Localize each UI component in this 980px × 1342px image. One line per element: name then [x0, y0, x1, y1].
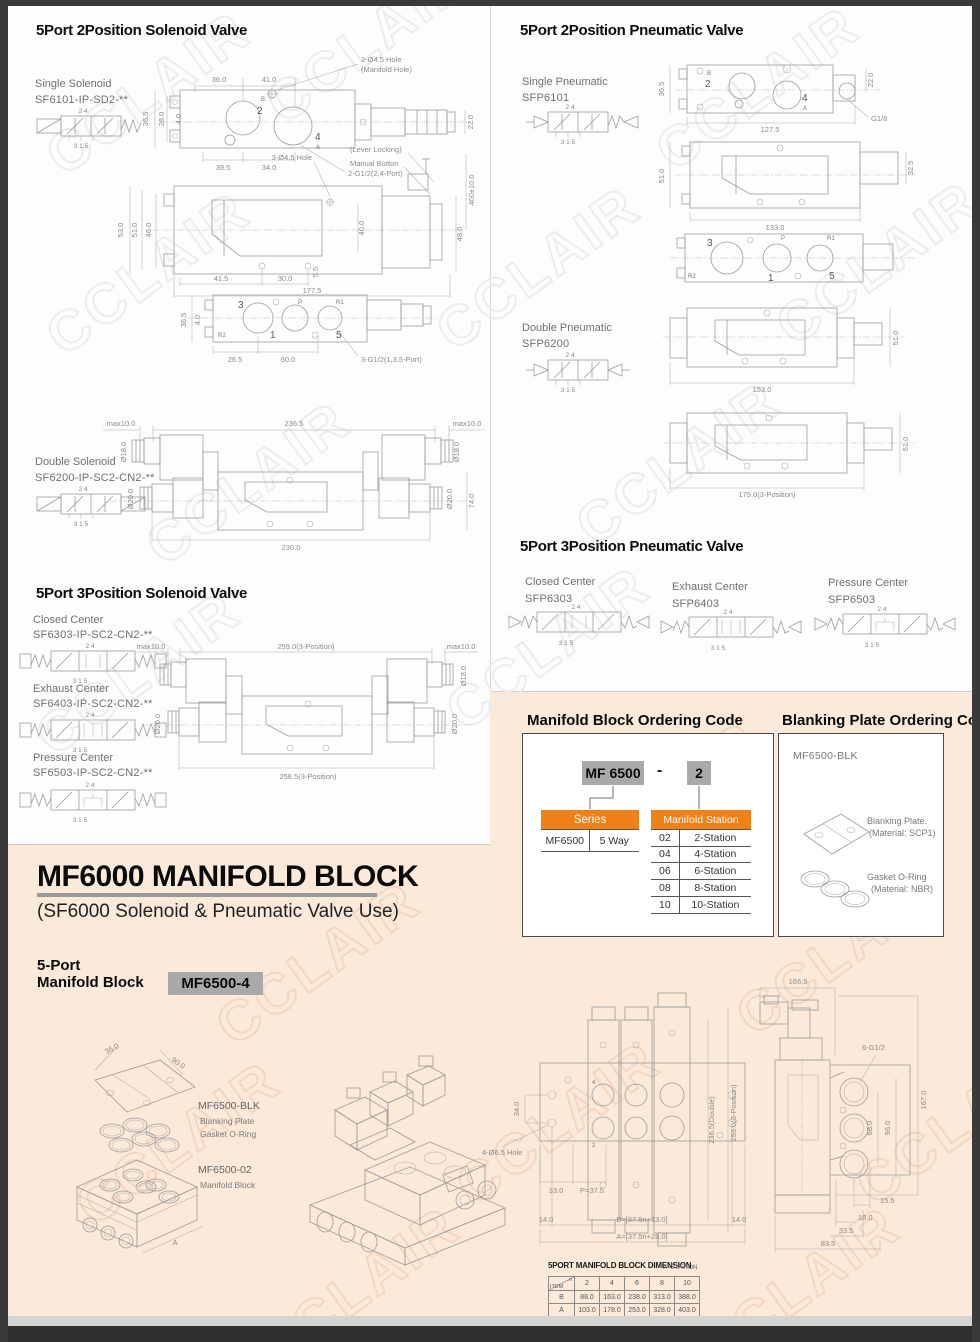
drawing-sfp6101-side-view: 51.0 32.5 133.0 — [650, 130, 930, 235]
page-right-edge — [972, 0, 980, 1342]
port-label: R1 — [827, 236, 835, 242]
dim: max10.0 — [137, 642, 166, 651]
dim: 74.0 — [467, 494, 476, 509]
svg-text:3 1 5: 3 1 5 — [559, 640, 574, 647]
exploded-mb-label: Manifold Block — [200, 1180, 255, 1190]
dim: 3-Ø4.5 Hole — [272, 153, 312, 162]
svg-text:2 4: 2 4 — [78, 486, 87, 493]
svg-text:3 1 5: 3 1 5 — [711, 645, 726, 652]
cell: 388.0 — [675, 1291, 700, 1304]
page-bottom-edge — [0, 1326, 980, 1342]
dim: 167.0 — [919, 1091, 928, 1110]
station-row: 06 6-Station — [651, 863, 751, 880]
port-label: A — [803, 106, 807, 112]
five-port-label-line1: 5-Port — [37, 957, 80, 974]
station-code: 02 — [651, 830, 680, 846]
dim: 36.0 — [212, 75, 227, 84]
dim: 33.0 — [549, 1186, 564, 1195]
dim: 41.5 — [214, 274, 229, 283]
dim: 258.5(3-Position) — [279, 772, 337, 781]
dim: 15.5 — [880, 1196, 895, 1205]
dim: 51.0 — [901, 437, 910, 452]
valve-symbol-sfp6503: 2 4 3 1 5 — [806, 604, 964, 648]
col-header: 6 — [625, 1277, 650, 1291]
col-header: 8 — [650, 1277, 675, 1291]
page-top-edge — [0, 0, 980, 6]
valve-symbol-sfp6303: 2 4 3 1 5 — [500, 602, 658, 646]
svg-text:2 4: 2 4 — [85, 712, 94, 719]
cell: 238.0 — [625, 1291, 650, 1304]
dim: 166.5 — [789, 977, 808, 986]
symbol-ports-top: 2 4 — [78, 108, 87, 115]
exploded-blk-model: MF6500-BLK — [198, 1100, 260, 1112]
dim: 6-G1/2 — [862, 1043, 885, 1052]
panel-edge — [491, 691, 972, 692]
dim: 96.0 — [883, 1121, 892, 1136]
svg-text:3 1 5: 3 1 5 — [73, 678, 88, 685]
catalog-page: CCLAIR CCLAIR CCLAIR CCLAIR CCLAIR CCLAI… — [0, 0, 980, 1342]
station-desc: 10-Station — [680, 897, 751, 913]
section-title-5p3p-pneumatic: 5Port 3Position Pneumatic Valve — [520, 538, 743, 555]
svg-text:2 4: 2 4 — [723, 609, 732, 616]
single-pneumatic-label: Single Pneumatic — [522, 76, 608, 88]
port-label: R2 — [688, 274, 696, 280]
drawing-sf6303: max10.0 259.0(3-Position) max10.0 Ø18.0 … — [130, 638, 482, 788]
blanking-plate-box: MF6500-BLK Blanking Plate. (Material: SC… — [778, 733, 944, 937]
port-label: R1 — [336, 300, 344, 306]
page-bottom-shadow — [8, 1316, 972, 1326]
col-header: 2 — [575, 1277, 600, 1291]
drawing-sfp6200-3pos: 51.0 179.0(3-Position) — [655, 398, 945, 503]
mf6000-title: MF6000 MANIFOLD BLOCK — [37, 860, 418, 894]
single-solenoid-model: SF6101-IP-SD2-** — [35, 94, 128, 106]
dim: max10.0 — [447, 642, 476, 651]
corner-n: n — [569, 1277, 572, 1283]
station-row: 04 4-Station — [651, 846, 751, 863]
section-title-5p2p-pneumatic: 5Port 2Position Pneumatic Valve — [520, 22, 743, 39]
cell: 88.0 — [575, 1291, 600, 1304]
exploded-blk-label1: Blanking Plate — [200, 1116, 254, 1126]
title-underline — [37, 893, 377, 897]
ordering-series-chip: MF 6500 — [582, 761, 644, 785]
dim: 153.0 — [753, 385, 772, 394]
port-label: P — [298, 300, 302, 306]
gasket-oring-material: (Material: NBR) — [871, 884, 933, 894]
mf6500-4-chip: MF6500-4 — [168, 972, 263, 995]
svg-text:2 4: 2 4 — [877, 606, 886, 613]
station-desc: 8-Station — [680, 880, 751, 896]
series-row: MF6500 5 Way — [541, 829, 639, 852]
blanking-plate-material: (Material: SCP1) — [869, 828, 936, 838]
dim: Ø18.0 — [119, 442, 128, 462]
blanking-plate-label: Blanking Plate. — [867, 816, 927, 826]
svg-text:2 4: 2 4 — [565, 352, 574, 359]
symbol-ports-bottom: 3 1 5 — [74, 143, 89, 150]
dim: 46.0 — [144, 223, 153, 238]
dim: 32.5 — [906, 161, 915, 176]
port-label: 1 — [768, 273, 774, 284]
svg-text:3 1 5: 3 1 5 — [74, 521, 89, 528]
drawing-sfp6101-top-view: 36.5 22.0 B 2 4 A G1/8 127.5 — [650, 55, 900, 135]
table-header-row: n ITEM 2 4 6 8 10 — [549, 1277, 700, 1291]
dim: 18.0 — [858, 1213, 873, 1222]
dim: P=37.5 — [580, 1186, 604, 1195]
exploded-view-drawing: 36.0 90.0 A — [55, 1035, 290, 1250]
dim: 33.5 — [839, 1226, 854, 1235]
exploded-mb-model: MF6500-02 — [198, 1164, 252, 1176]
gasket-oring-label: Gasket O-Ring — [867, 872, 927, 882]
section-title-5p2p-solenoid: 5Port 2Position Solenoid Valve — [36, 22, 247, 39]
variant-label: Exhaust Center — [33, 683, 109, 695]
variant-label: Exhaust Center — [672, 581, 748, 593]
dim: Ø20.0 — [153, 714, 162, 734]
dim: Ø18.0 — [452, 442, 461, 462]
cell: 163.0 — [600, 1291, 625, 1304]
page-left-edge — [0, 0, 8, 1342]
dim: 90.0 — [170, 1055, 187, 1071]
port-label: 2 — [592, 1143, 596, 1149]
table-corner-cell: n ITEM — [549, 1277, 575, 1291]
dim: (Manifold Hole) — [361, 65, 412, 74]
series-desc: 5 Way — [590, 830, 639, 851]
blanking-plate-title: Blanking Plate Ordering Code — [782, 712, 980, 729]
svg-text:2 4: 2 4 — [571, 604, 580, 611]
station-code: 08 — [651, 880, 680, 896]
dim: 36.5 — [657, 82, 666, 97]
dim: A=[37.5n+28.0] — [616, 1232, 667, 1241]
ordering-code-title: Manifold Block Ordering Code — [527, 712, 743, 729]
manifold-station-header: Manifold Station — [651, 810, 751, 829]
port-label: 2 — [257, 106, 263, 117]
port-label: R2 — [218, 333, 226, 339]
series-code: MF6500 — [541, 830, 590, 851]
dim: 14.0 — [539, 1215, 554, 1224]
port-label: 2 — [705, 79, 711, 90]
port-label: B — [707, 71, 711, 77]
dim: 28.0 — [157, 112, 166, 127]
dim: 4.0 — [193, 315, 202, 325]
station-row: 10 10-Station — [651, 897, 751, 914]
manifold-side-view-drawing: 166.5 6-G1/2 68.0 96.0 167.0 15.5 18.0 3… — [750, 960, 978, 1260]
section-title-5p3p-solenoid: 5Port 3Position Solenoid Valve — [36, 585, 247, 602]
svg-text:2 4: 2 4 — [85, 782, 94, 789]
dim: max10.0 — [453, 419, 482, 428]
dim: 4.0 — [174, 114, 183, 124]
cell: 313.0 — [650, 1291, 675, 1304]
dim: max10.0 — [107, 419, 136, 428]
station-code: 10 — [651, 897, 680, 913]
dim: 259.0(3-Position) — [277, 642, 335, 651]
port-label: 4 — [592, 1080, 596, 1086]
port-label: 5 — [829, 271, 835, 282]
dim-table-note: n=STATION — [663, 1264, 698, 1271]
station-desc: 6-Station — [680, 863, 751, 879]
series-header: Series — [541, 810, 639, 829]
exploded-blk-label2: Gasket O-Ring — [200, 1129, 256, 1139]
port-label: P — [781, 236, 785, 242]
drawing-sf6200: max10.0 236.5 max10.0 Ø18.0 Ø18.0 Ø20.0 … — [95, 412, 487, 564]
dim: 30.0 — [278, 274, 293, 283]
dim: 22.0 — [466, 115, 475, 130]
drawing-sfp6101-port-view: 3 P R1 R2 1 5 — [655, 228, 935, 290]
drawing-sfp6200-2pos: 51.0 153.0 — [655, 295, 945, 395]
valve-symbol-sfp6200: 2 4 3 1 5 — [512, 350, 647, 392]
dim: 41.0 — [262, 75, 277, 84]
dim: 36.5 — [141, 112, 150, 127]
dim: G1/8 — [871, 114, 887, 123]
svg-text:2 4: 2 4 — [85, 643, 94, 650]
dim: 4-Ø6.5 Hole — [482, 1148, 522, 1157]
dim: 26.5 — [228, 355, 243, 364]
svg-text:3 1 5: 3 1 5 — [865, 642, 880, 649]
station-row: 08 8-Station — [651, 880, 751, 897]
port-label: 3 — [238, 300, 244, 311]
page-fold-line — [490, 6, 491, 692]
single-solenoid-label: Single Solenoid — [35, 78, 111, 90]
manifold-top-view-drawing: 4 2 34.0 4-Ø6.5 Hole 33.0 P=37.5 236.5(D… — [480, 985, 775, 1262]
dim: 5.5 — [311, 267, 320, 277]
dim: 36.5 — [179, 313, 188, 328]
ordering-dash: - — [657, 762, 662, 780]
drawing-sf6101-side-view: 3-Ø4.5 Hole (Lever Locking) Manual Butto… — [112, 138, 484, 300]
corner-item: ITEM — [550, 1284, 563, 1290]
port-label: B — [261, 97, 265, 103]
dim: 51.0 — [657, 169, 666, 184]
double-pneumatic-label: Double Pneumatic — [522, 322, 612, 334]
svg-text:3 1 5: 3 1 5 — [73, 747, 88, 754]
variant-label: Pressure Center — [828, 577, 908, 589]
valve-symbol-sfp6101: 2 4 3 1 5 — [512, 102, 647, 144]
dimension-table: n ITEM 2 4 6 8 10 B 88.0 163.0 238.0 313… — [548, 1276, 700, 1317]
station-code: 04 — [651, 846, 680, 862]
dim: 400±10.0 — [467, 174, 476, 205]
drawing-sf6101-port-view: 3 P R1 R2 1 5 36.5 4.0 26.5 60.0 3-G1/2(… — [178, 292, 473, 372]
dim: 236.5(Double) — [707, 1096, 716, 1144]
dim: 236.5 — [285, 419, 304, 428]
dim: 36.0 — [103, 1041, 120, 1056]
dim: 40.0 — [357, 221, 366, 236]
dim: 22.0 — [866, 73, 875, 88]
station-row: 02 2-Station — [651, 829, 751, 847]
mf6000-subtitle: (SF6000 Solenoid & Pneumatic Valve Use) — [37, 901, 399, 923]
dim: 53.0 — [116, 223, 125, 238]
ordering-code-box: MF 6500 - 2 Series MF6500 5 Way Manifold… — [522, 733, 774, 937]
variant-label: Closed Center — [33, 614, 103, 626]
dim: Ø18.0 — [459, 666, 468, 686]
svg-text:3 1 5: 3 1 5 — [561, 387, 576, 394]
dim: 34.0 — [512, 1102, 521, 1117]
col-header: 10 — [675, 1277, 700, 1291]
port-label: 3 — [707, 238, 713, 249]
dim: 3-G1/2(1,3,5-Port) — [361, 355, 422, 364]
dim: 259.0(3-Position) — [729, 1084, 738, 1142]
dim: 48.0 — [455, 227, 464, 242]
port-label: 4 — [802, 93, 808, 104]
dim: 2-Ø4.5 Hole — [361, 55, 401, 64]
dim: Ø20.0 — [445, 489, 454, 509]
dim: 230.0 — [282, 543, 301, 552]
port-label: 1 — [270, 330, 276, 341]
variant-label: Closed Center — [525, 576, 595, 588]
five-port-label-line2: Manifold Block — [37, 974, 144, 991]
table-row: B 88.0 163.0 238.0 313.0 388.0 — [549, 1291, 700, 1304]
dim: 68.0 — [865, 1121, 874, 1136]
dim: 51.0 — [130, 223, 139, 238]
dim: 51.0 — [891, 331, 900, 346]
dim: 83.5 — [821, 1239, 836, 1248]
col-header: 4 — [600, 1277, 625, 1291]
dim: 60.0 — [281, 355, 296, 364]
dim: (Lever Locking) — [350, 145, 402, 154]
dim: 179.0(3-Position) — [738, 490, 796, 499]
dim: Manual Button — [350, 159, 398, 168]
dim: B=[37.5n+13.0] — [616, 1215, 667, 1224]
row-item: B — [549, 1291, 575, 1304]
ordering-station-chip: 2 — [687, 761, 711, 785]
svg-text:3 1 5: 3 1 5 — [561, 139, 576, 146]
dim: 14.0 — [732, 1215, 747, 1224]
station-code: 06 — [651, 863, 680, 879]
svg-text:3 1 5: 3 1 5 — [73, 817, 88, 824]
panel-edge — [8, 844, 490, 845]
double-pneumatic-model: SFP6200 — [522, 338, 569, 350]
dim: A — [172, 1238, 177, 1247]
dim: Ø20.0 — [126, 489, 135, 509]
dim: Ø20.0 — [450, 714, 459, 734]
station-desc: 4-Station — [680, 846, 751, 862]
svg-text:2 4: 2 4 — [565, 104, 574, 111]
station-desc: 2-Station — [680, 830, 751, 846]
valve-symbol-sfp6403: 2 4 3 1 5 — [652, 607, 810, 651]
